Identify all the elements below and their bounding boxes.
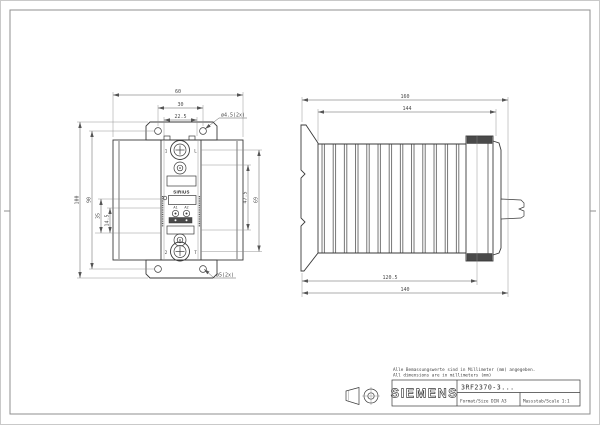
dim-front-right-inner: 47.5: [243, 191, 249, 203]
projection-symbol: [346, 387, 380, 405]
dim-top-hole-dia: ø4.5(2x): [221, 113, 245, 119]
ctrl-a2-label: A2: [184, 206, 188, 210]
frustum-icon: [346, 388, 359, 405]
bottom-hole-left: [155, 266, 162, 273]
top-hole-left: [155, 128, 162, 135]
dim-front-width-mid: 30: [177, 102, 183, 108]
order-number: 3RF2370-3...: [461, 384, 515, 392]
ctrl-a1-label: A1: [173, 206, 177, 210]
rating-plate: [169, 196, 197, 205]
dim-side-bottom-outer: 140: [400, 287, 409, 293]
technical-drawing: 1 L SIRIUS A1 A2: [0, 0, 600, 425]
title-block: SIEMENS 3RF2370-3... Format/Size DIN A3 …: [391, 380, 580, 406]
flange-plate-side: [466, 136, 493, 261]
label-window-top: [167, 176, 196, 186]
dim-side-depth-outer: 160: [400, 94, 409, 100]
terminal-2-label: 2: [165, 250, 168, 255]
note-de: Alle Bemassungswerte sind in Millimeter …: [393, 367, 535, 373]
dim-front-left-b: 14.5: [105, 214, 111, 226]
dim-side-bottom-inner: 120.5: [382, 275, 397, 281]
dim-front-left-a: 35: [96, 213, 102, 219]
dim-bottom-hole-dia: ø5(2x): [216, 273, 234, 279]
dim-front-height-mid: 90: [87, 197, 93, 203]
sirius-logo-text: SIRIUS: [173, 190, 189, 195]
flange-cap-bottom: [467, 254, 492, 261]
leader-top-hole: [205, 118, 247, 129]
dim-front-right-outer: 69: [254, 197, 260, 203]
label-window-bottom: [167, 226, 194, 234]
title-block-area: Alle Bemassungswerte sind in Millimeter …: [346, 367, 580, 406]
terminal-1-label: 1: [165, 149, 168, 154]
siemens-logo: SIEMENS: [391, 387, 458, 401]
side-view: 160 144 120.5 140: [301, 94, 524, 297]
terminal-l-label: L: [194, 149, 197, 154]
drawing-page: 1 L SIRIUS A1 A2: [0, 0, 600, 425]
flange-cap-top: [467, 137, 492, 144]
module-housing-side: [493, 141, 501, 255]
ctrl-terminal-block: [169, 218, 192, 224]
scale: Massstab/Scale 1:1: [523, 399, 570, 405]
relay-module: 1 L SIRIUS A1 A2: [161, 136, 201, 261]
status-led: [163, 196, 167, 200]
dim-front-height-outer: 100: [75, 195, 81, 204]
bottom-hole-right: [200, 266, 207, 273]
heatsink-fins: [320, 144, 466, 253]
front-view: 1 L SIRIUS A1 A2: [75, 89, 263, 279]
mounting-bracket-profile: [301, 125, 318, 271]
note-en: All dimensions are in millimeters (mm): [393, 373, 491, 379]
dim-front-width-outer: 60: [175, 89, 181, 95]
terminal-connector-side: [501, 199, 524, 219]
dim-front-width-inner: 22.5: [174, 114, 186, 120]
terminal-t-label: T: [194, 250, 197, 255]
format-size: Format/Size DIN A3: [460, 399, 507, 405]
dim-side-depth-inner: 144: [402, 106, 411, 112]
